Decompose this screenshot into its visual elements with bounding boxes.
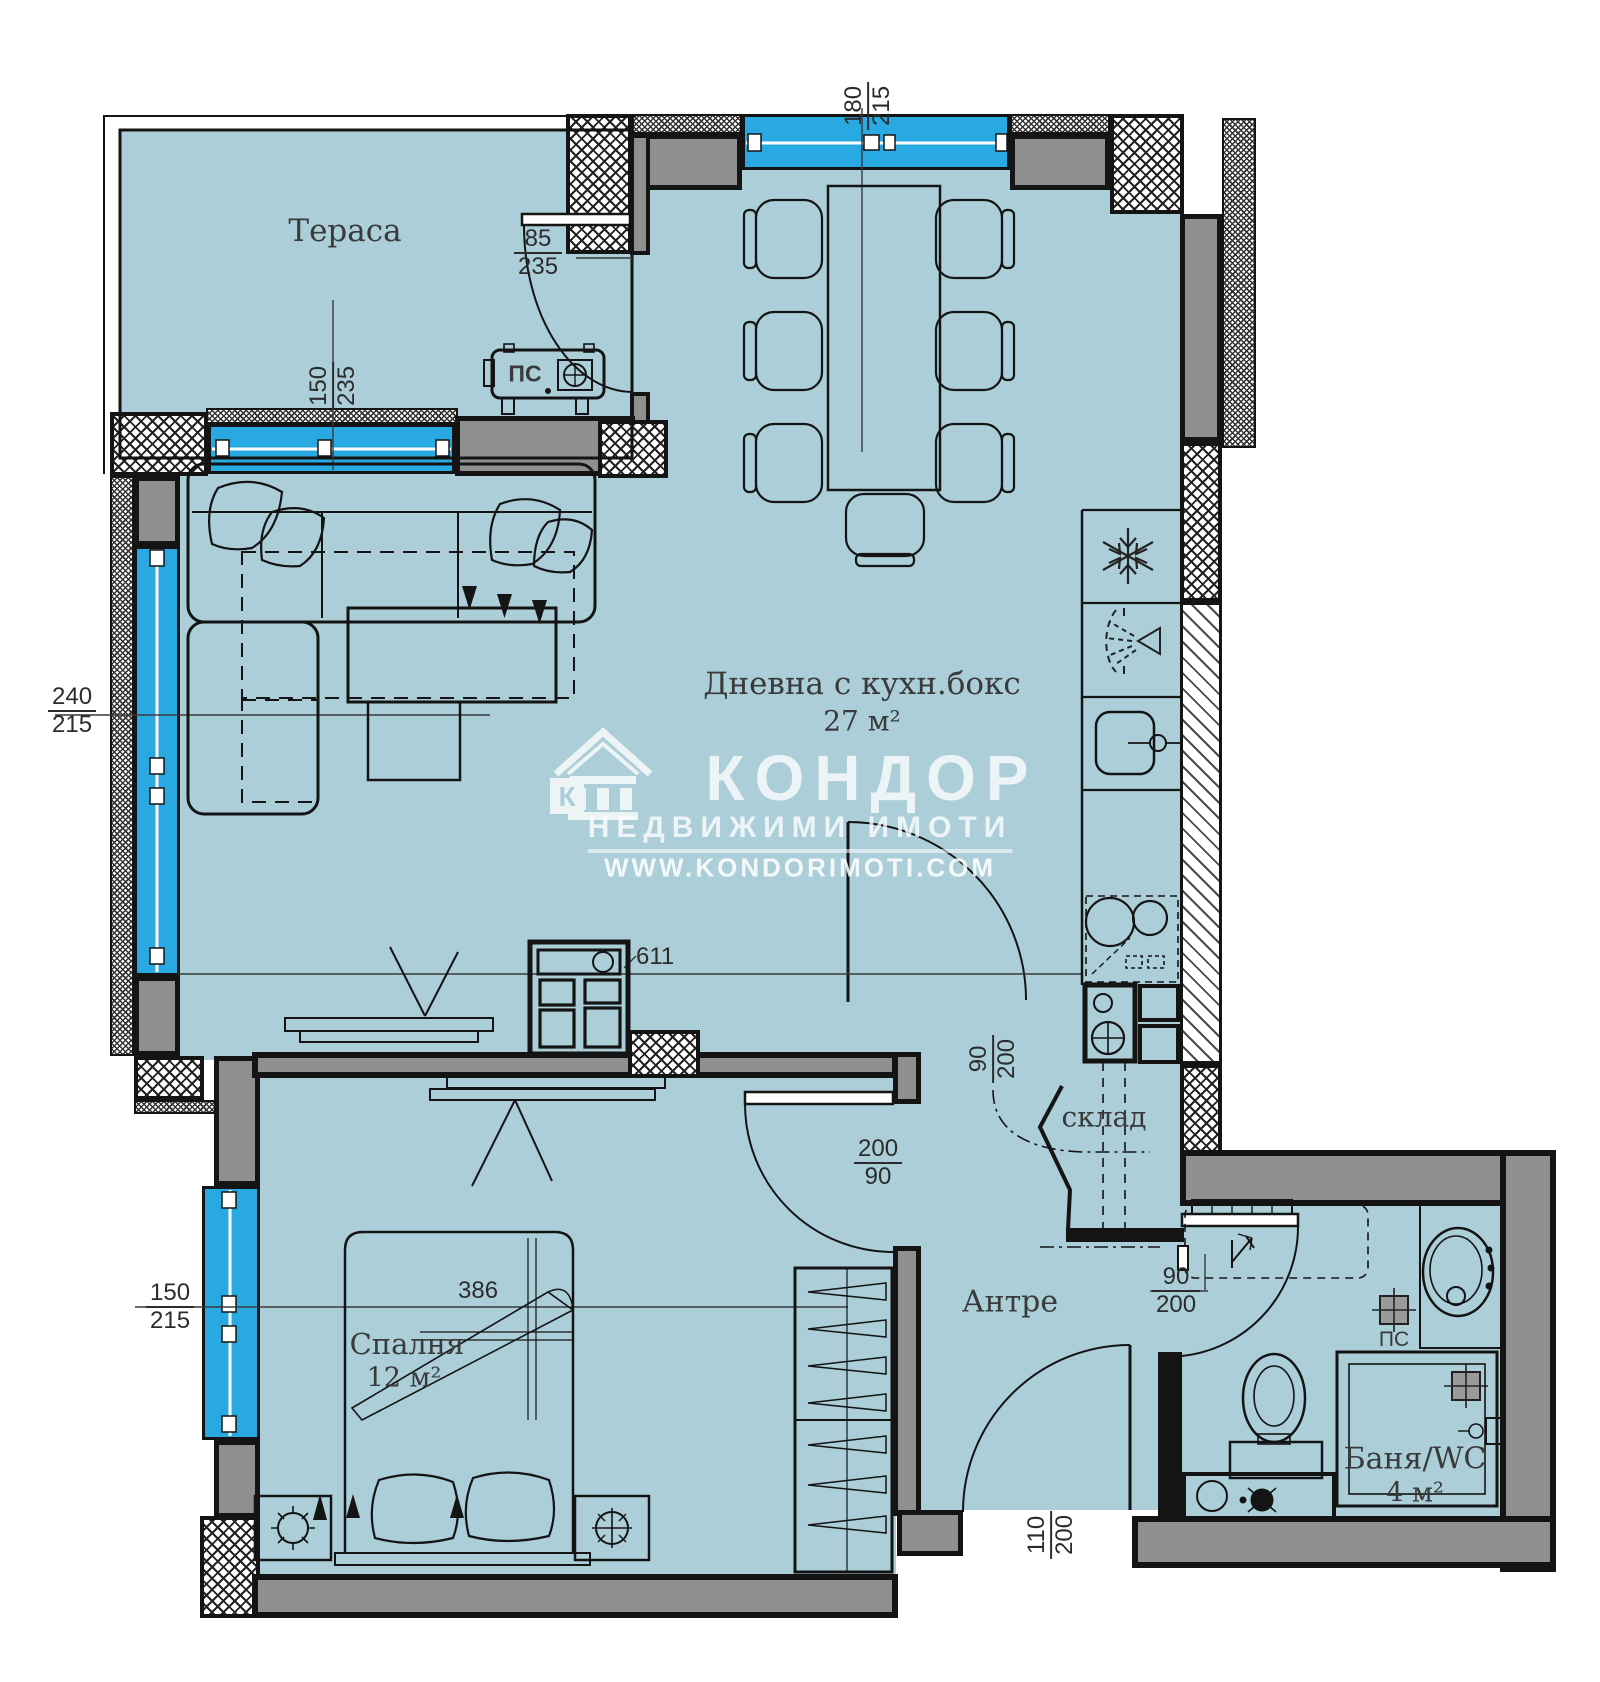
room-label-terrace: Тераса [288,213,401,249]
wall-insulation-top-2 [1010,114,1110,134]
dim-bedroom-door: 20090 [854,1136,902,1190]
dim-living-length: 611 [636,944,674,970]
wall-column-top-left [566,114,632,254]
wall-top-2 [1010,134,1110,190]
dim-bedroom-width: 386 [458,1278,498,1304]
wall-insulation-top-1 [632,114,742,134]
watermark-website: WWW.KONDORIMOTI.COM [604,853,996,884]
floor-plan: К КОНДОР НЕДВИЖИМИ ИМОТИ WWW.KONDORIMOTI… [0,0,1600,1682]
wall-column-bedroom-sw [200,1516,260,1618]
dim-bedroom-window: 150215 [146,1280,194,1334]
wall-column-terrace-se [598,420,668,478]
wall-terrace-east-upper [630,134,650,255]
window-bedroom-west [202,1186,260,1440]
wall-column-terrace-sw [110,412,208,476]
wall-living-bedroom [252,1052,898,1078]
room-label-bedroom: Спалня [350,1327,465,1361]
watermark-tagline: НЕДВИЖИМИ ИМОТИ [588,811,1013,853]
dim-entry-door: 110200 [1022,1508,1080,1562]
wall-insulation-right [1222,118,1256,448]
wall-bathroom-west [1158,1352,1182,1522]
terrace-unit-label: ПС [508,361,541,388]
wall-bedroom-south [252,1574,898,1618]
wall-bathroom-south [1132,1516,1556,1568]
wall-left-below-window [134,976,180,1056]
wall-left-above-window [134,476,180,546]
room-label-storage: склад [1062,1101,1147,1134]
room-label-bathroom: Баня/WC [1344,1442,1487,1477]
wall-storage-south [1066,1228,1184,1242]
room-label-hall: Антре [962,1285,1058,1320]
wall-column-top-right [1110,114,1184,214]
wall-entry-stub [897,1510,963,1556]
wall-bedroom-hall-lower [893,1246,921,1516]
room-area-bedroom: 12 м² [367,1363,442,1394]
dim-bathroom-door: 90200 [1152,1264,1200,1318]
wall-insulation-left-jog [134,1100,220,1114]
wall-column-left-jog [134,1056,204,1100]
dim-terrace-window: 150235 [302,338,364,434]
wall-bathroom-east [1500,1150,1556,1572]
living-room-floor [178,130,1183,1060]
wall-insulation-left [110,476,134,1056]
wall-right-upper [1180,214,1222,442]
dim-living-window: 240215 [48,684,96,738]
dim-kitchen-door: 90200 [962,1028,1024,1090]
bathroom-unit-label: ПС [1379,1328,1409,1352]
dim-terrace-door: 85235 [514,226,562,280]
wall-column-center [628,1030,700,1078]
room-area-living: 27 м² [823,705,901,738]
room-label-living: Дневна с кухн.бокс [703,666,1021,702]
wall-column-right-1 [1180,442,1222,602]
window-living-west [134,546,180,976]
hall-floor [895,974,1185,1510]
dim-top-window: 180215 [836,48,900,164]
room-area-bathroom: 4 м² [1386,1478,1444,1509]
bedroom-floor [256,1058,896,1574]
wall-party-right [1180,602,1222,1064]
wall-bedroom-west-lower [214,1440,260,1518]
wall-bedroom-hall-upper [893,1052,921,1104]
watermark-brand: КОНДОР [705,741,1038,815]
